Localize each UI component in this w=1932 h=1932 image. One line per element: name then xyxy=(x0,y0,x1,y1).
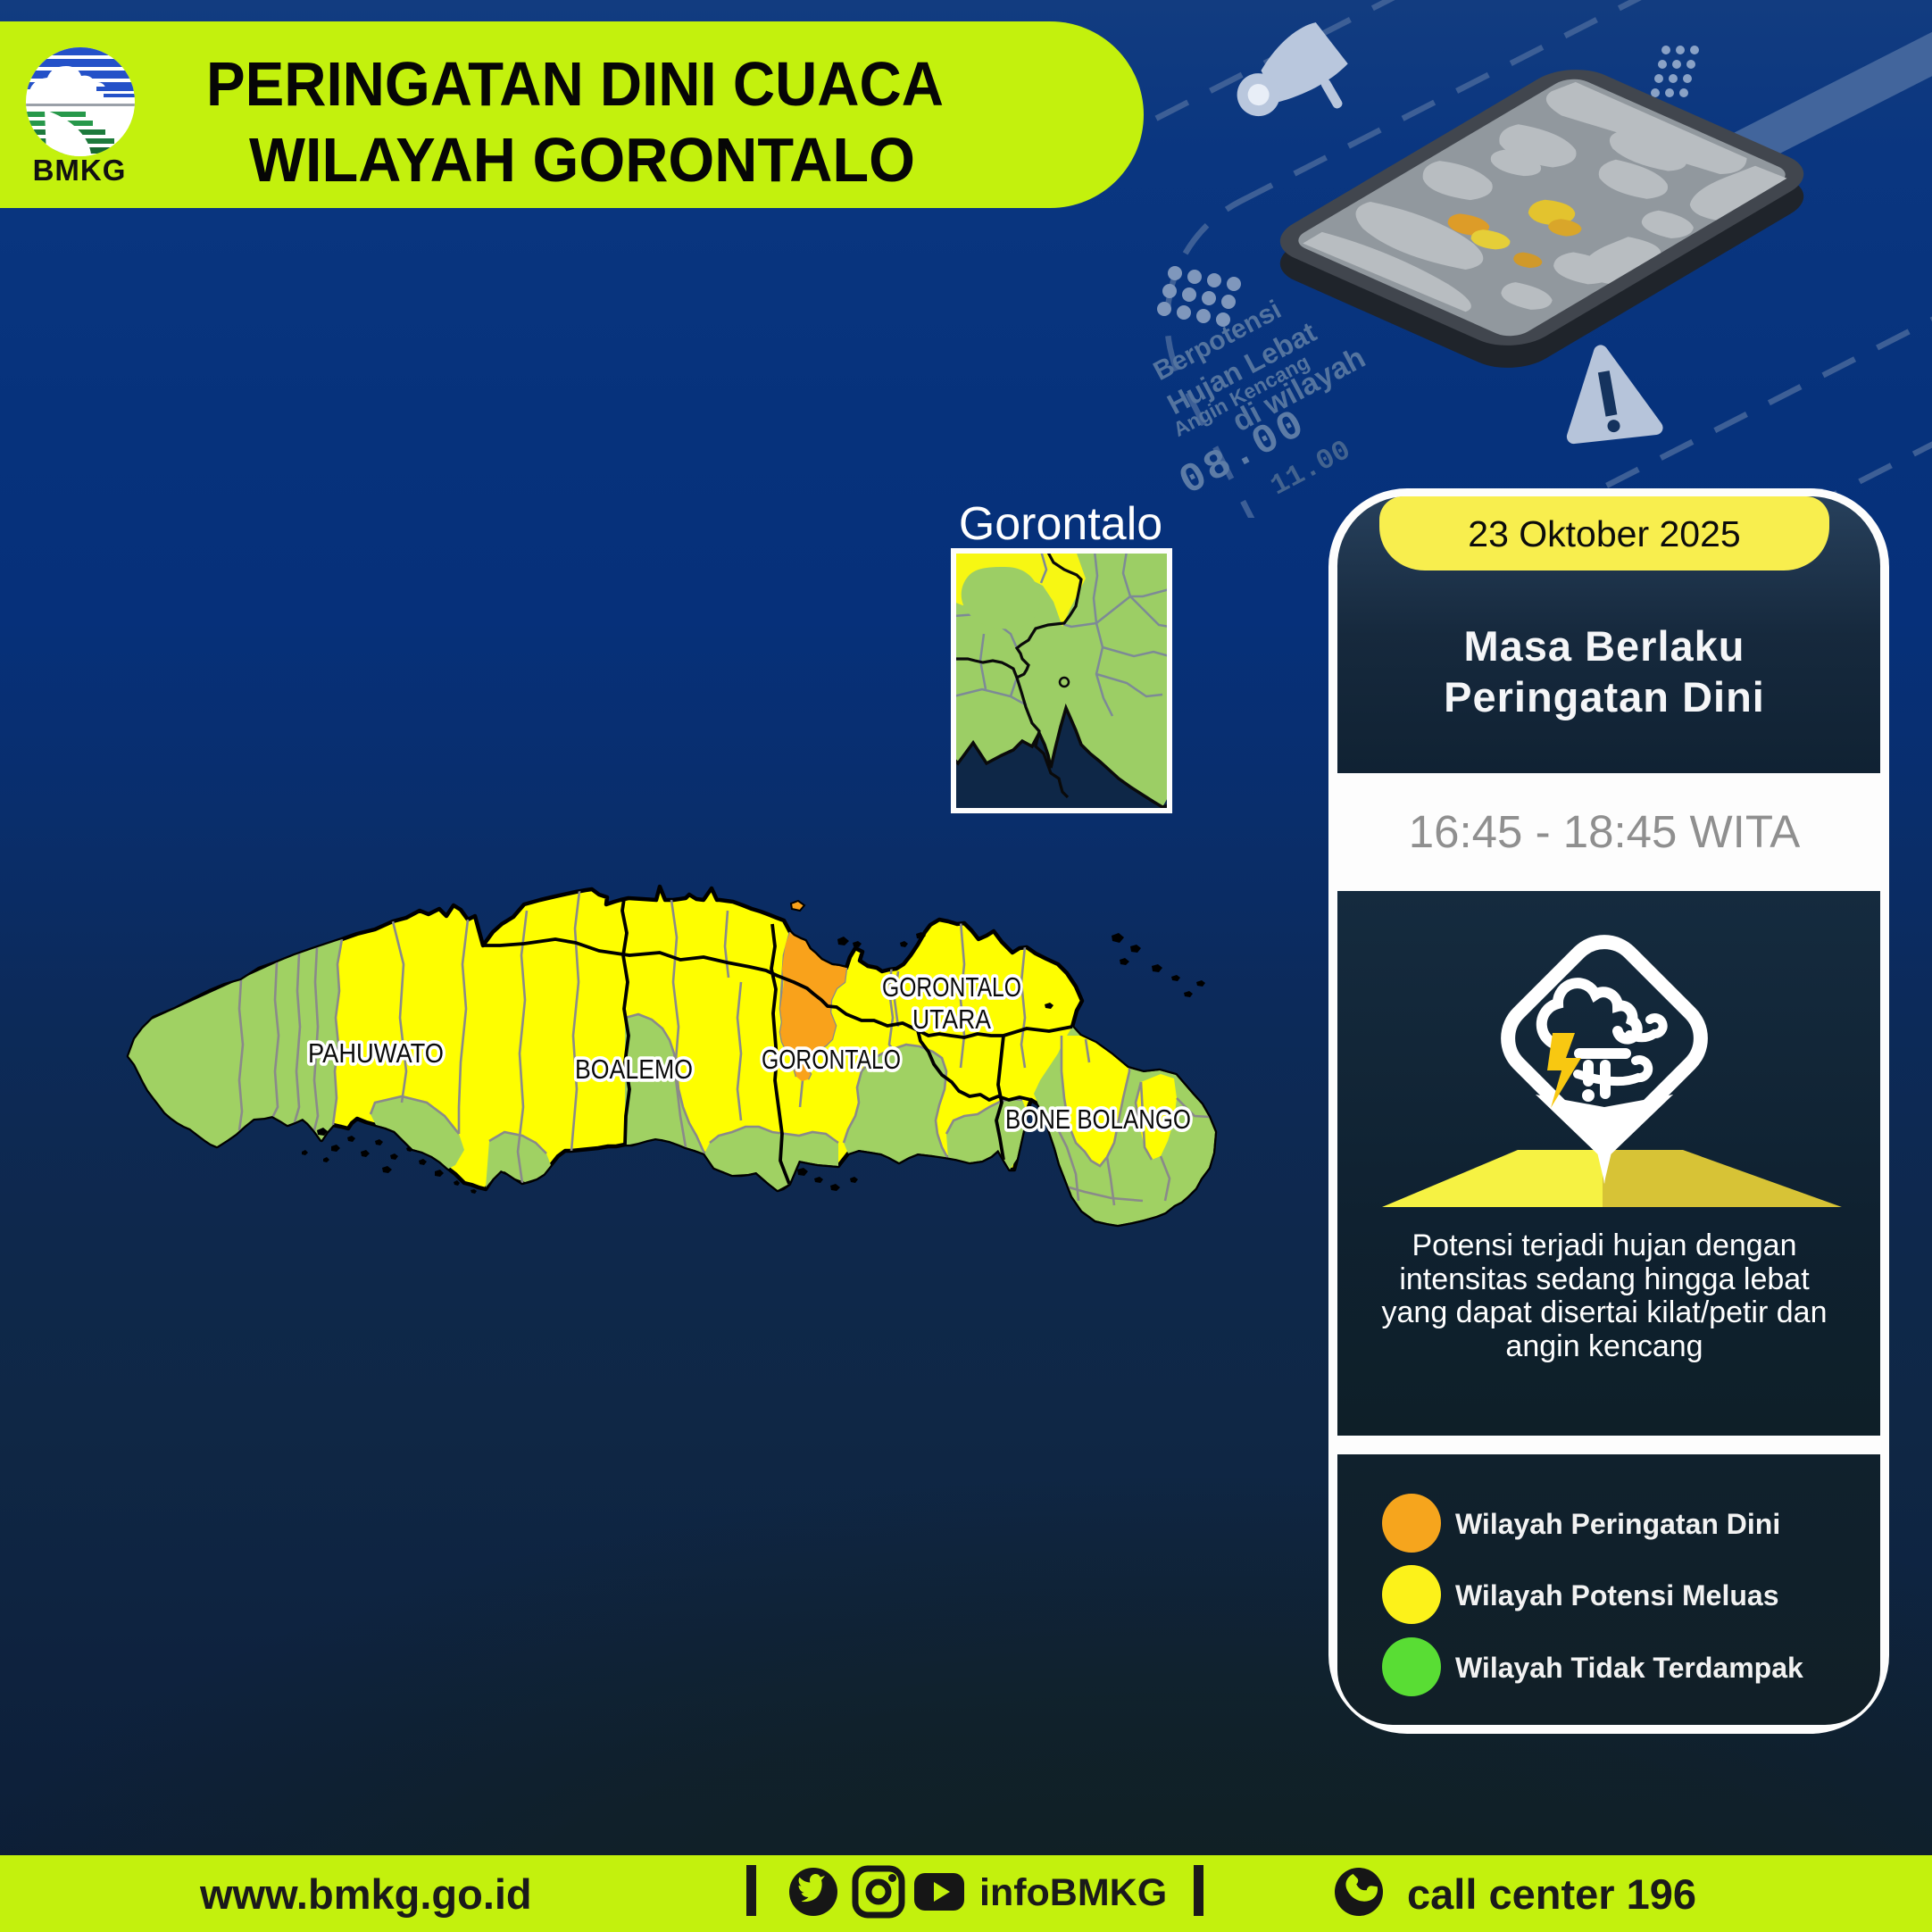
svg-text:BONE BOLANGO: BONE BOLANGO xyxy=(1005,1103,1191,1135)
svg-text:yang dapat disertai kilat/peti: yang dapat disertai kilat/petir dan xyxy=(1382,1295,1828,1329)
svg-text:Peringatan Dini: Peringatan Dini xyxy=(1444,673,1765,720)
svg-text:Potensi terjadi hujan dengan: Potensi terjadi hujan dengan xyxy=(1412,1228,1797,1262)
svg-text:intensitas sedang hingga lebat: intensitas sedang hingga lebat xyxy=(1399,1262,1810,1296)
svg-text:Gorontalo: Gorontalo xyxy=(959,498,1162,550)
svg-text:16:45 - 18:45 WITA: 16:45 - 18:45 WITA xyxy=(1409,806,1800,857)
svg-text:BOALEMO: BOALEMO xyxy=(575,1053,693,1085)
svg-text:Masa Berlaku: Masa Berlaku xyxy=(1463,622,1745,670)
svg-text:Wilayah Tidak Terdampak: Wilayah Tidak Terdampak xyxy=(1455,1652,1803,1684)
svg-text:GORONTALO: GORONTALO xyxy=(882,971,1021,1003)
svg-text:UTARA: UTARA xyxy=(912,1003,991,1035)
svg-text:Wilayah Peringatan Dini: Wilayah Peringatan Dini xyxy=(1455,1508,1780,1540)
svg-text:Wilayah Potensi Meluas: Wilayah Potensi Meluas xyxy=(1455,1579,1778,1611)
svg-text:23 Oktober 2025: 23 Oktober 2025 xyxy=(1468,513,1740,554)
svg-text:PAHUWATO: PAHUWATO xyxy=(308,1037,444,1069)
svg-text:PERINGATAN DINI CUACA: PERINGATAN DINI CUACA xyxy=(206,49,944,119)
svg-text:WILAYAH GORONTALO: WILAYAH GORONTALO xyxy=(249,125,915,195)
svg-text:GORONTALO: GORONTALO xyxy=(762,1044,901,1075)
svg-text:angin kencang: angin kencang xyxy=(1505,1329,1703,1363)
